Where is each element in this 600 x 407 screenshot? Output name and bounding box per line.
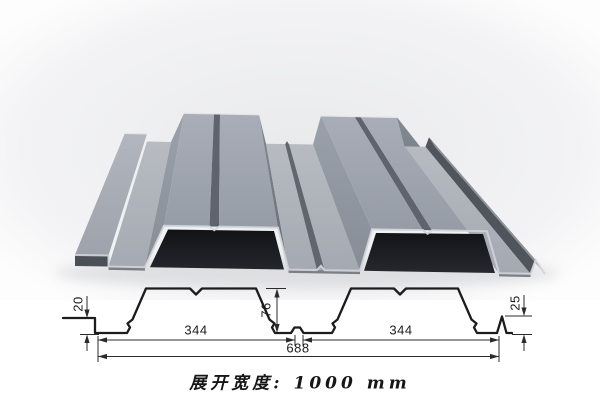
figure-caption: 展开宽度: 1000 mm [189, 369, 410, 394]
dim-label-rib-height: 76 [259, 302, 274, 317]
dim-label-left-height: 20 [71, 296, 86, 311]
dim-label-right-height: 25 [508, 295, 523, 310]
product-figure: 20 76 25 344 344 688 展开宽度: 1000 mm [0, 0, 600, 407]
dim-label-right-span: 344 [389, 323, 412, 338]
rib-2-cavity [364, 233, 495, 273]
rib-1-cavity [150, 230, 284, 270]
dim-label-left-span: 344 [184, 323, 207, 338]
dim-label-total-span: 688 [286, 341, 309, 356]
